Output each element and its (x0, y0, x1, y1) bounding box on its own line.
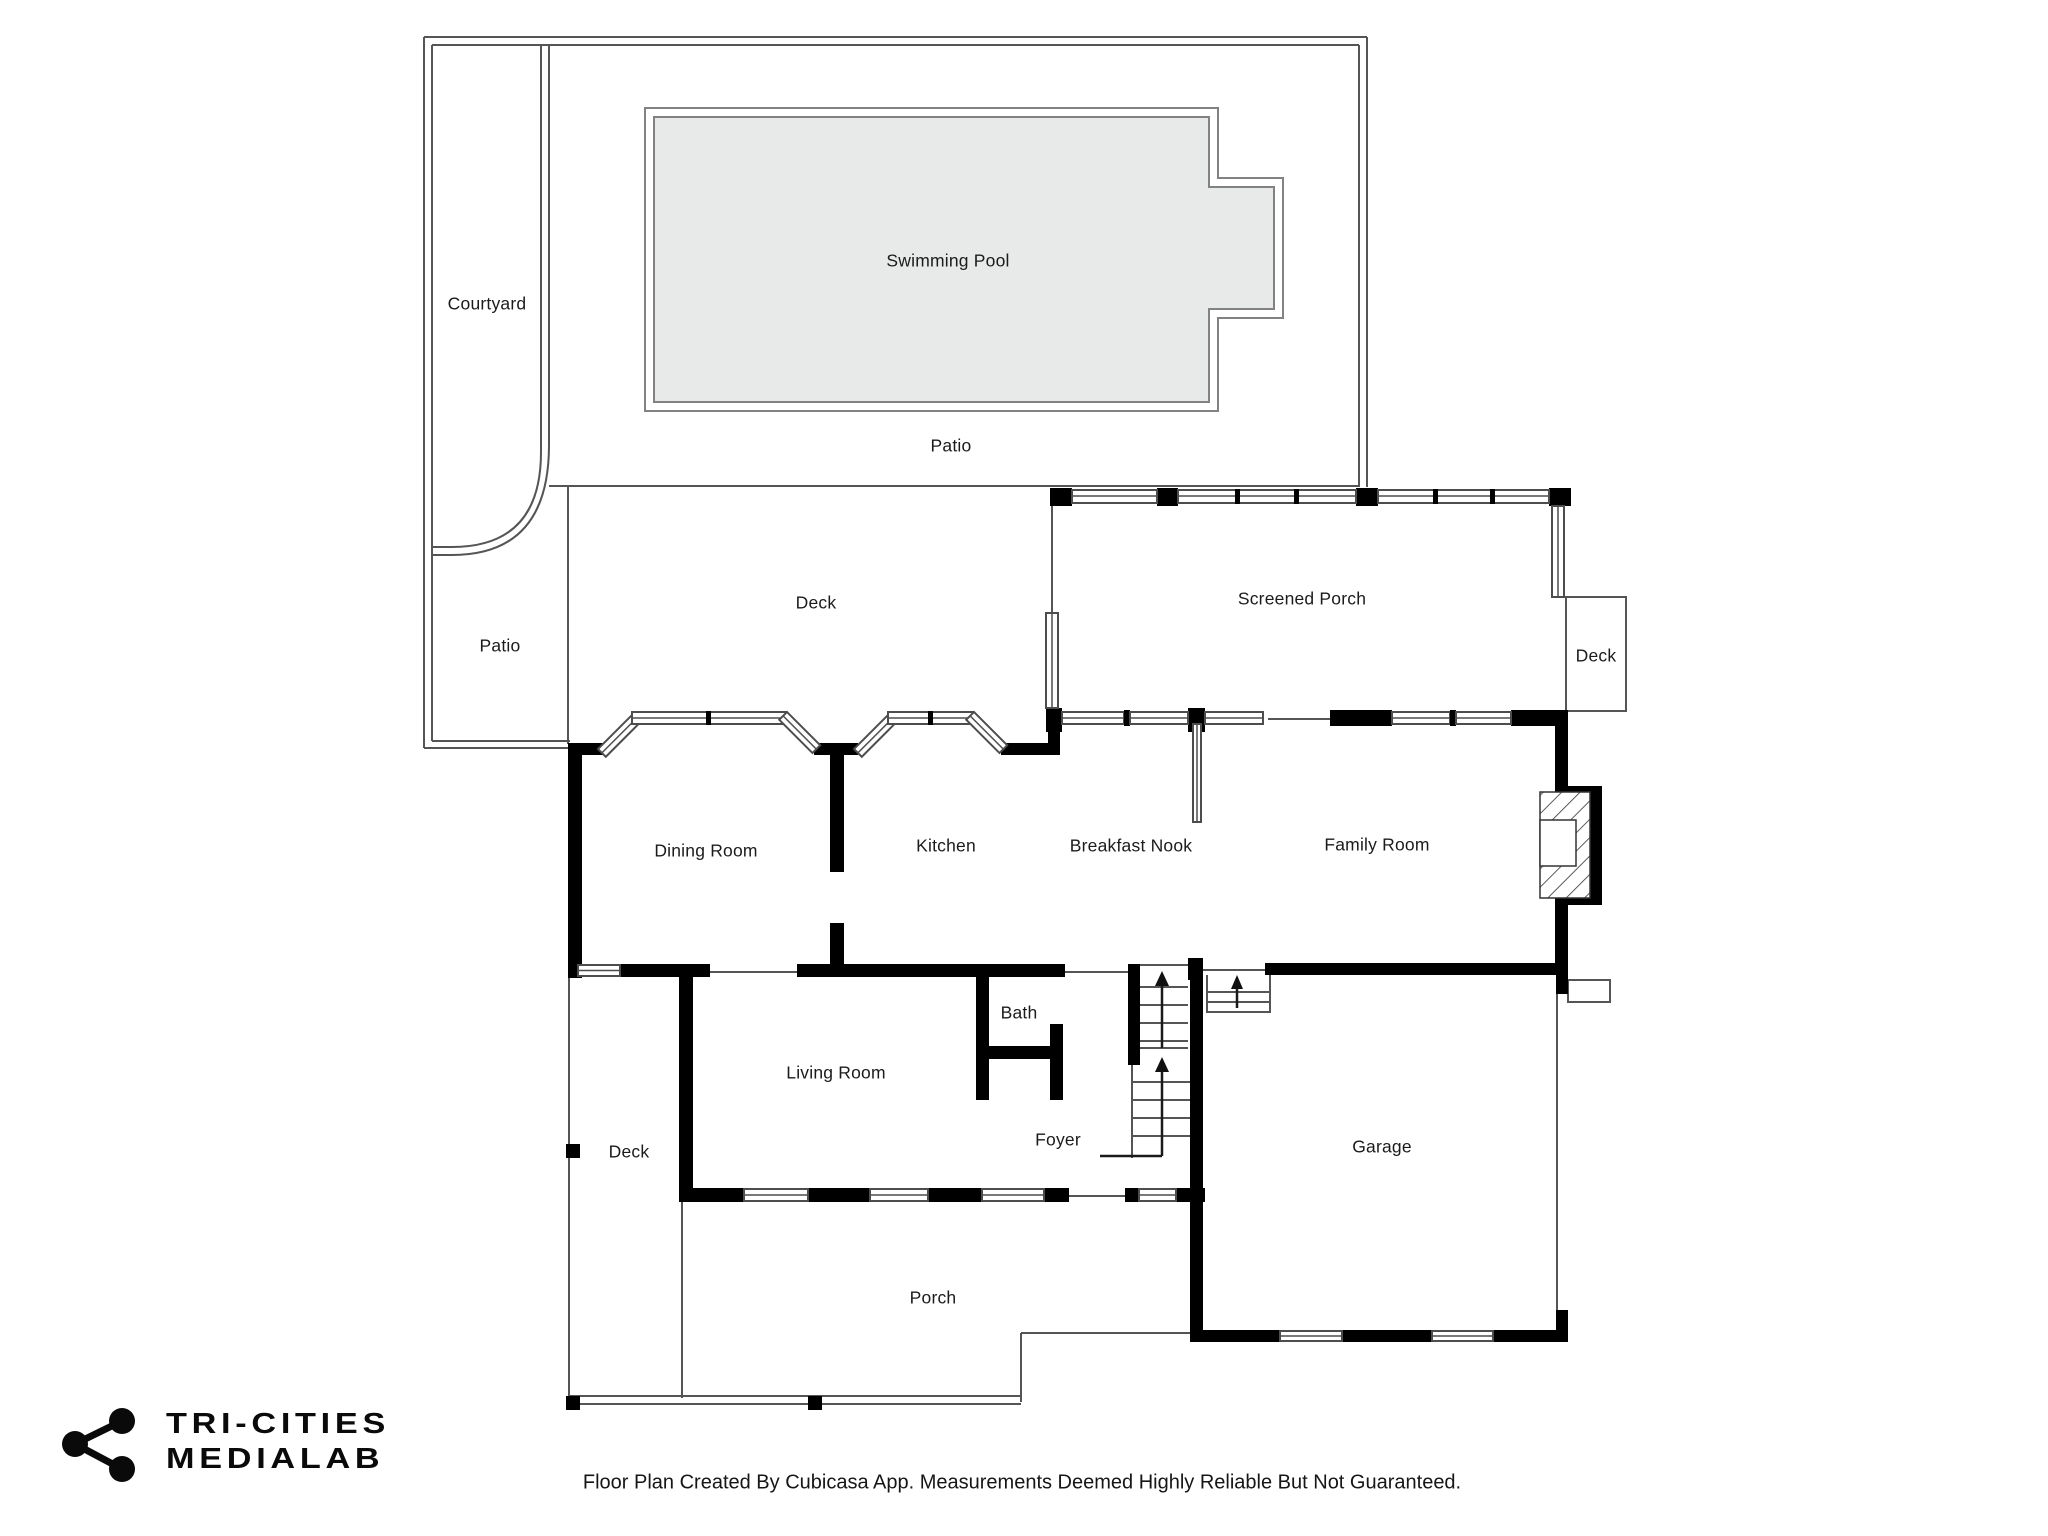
room-label-patio-left: Patio (480, 636, 521, 657)
room-label-family-room: Family Room (1324, 835, 1429, 856)
room-label-living-room: Living Room (786, 1063, 885, 1084)
bay-window-kitchen (854, 711, 1007, 757)
stairs-up-arrowhead-2 (1155, 1057, 1169, 1072)
floorplan-page: Courtyard Swimming Pool Patio Patio Deck… (0, 0, 2048, 1536)
company-logo: TRI-CITIES MEDIALAB (58, 1402, 356, 1482)
room-label-courtyard: Courtyard (448, 294, 527, 315)
logo-line1: TRI-CITIES (166, 1407, 390, 1442)
room-label-dining-room: Dining Room (654, 841, 757, 862)
walls (566, 488, 1602, 1410)
room-label-bath: Bath (1001, 1003, 1038, 1024)
garage-stoop-outline (1568, 980, 1610, 1002)
room-label-porch: Porch (910, 1288, 957, 1309)
room-label-deck-right: Deck (1576, 646, 1617, 667)
stairs-up-arrowhead-1 (1155, 971, 1169, 986)
room-label-kitchen: Kitchen (916, 836, 976, 857)
room-label-swimming-pool: Swimming Pool (886, 251, 1009, 272)
fireplace (1540, 792, 1590, 898)
room-label-patio-top: Patio (931, 436, 972, 457)
courtyard-curved-wall (432, 445, 549, 555)
room-label-deck-left: Deck (609, 1142, 650, 1163)
disclaimer-text: Floor Plan Created By Cubicasa App. Meas… (583, 1472, 1461, 1495)
stairs-up-arrow-shaft (1100, 984, 1237, 1156)
garage-steps-arrowhead (1231, 975, 1243, 989)
logo-line2: MEDIALAB (166, 1442, 390, 1477)
bay-window-dining (598, 711, 820, 757)
stairs (1100, 971, 1270, 1158)
logo-icon-spacer (58, 1402, 148, 1482)
logo-text: TRI-CITIES MEDIALAB (166, 1407, 390, 1477)
room-label-screened-porch: Screened Porch (1238, 589, 1366, 610)
windows (578, 489, 1564, 1341)
floorplan-drawing (0, 0, 2048, 1536)
room-label-deck-top: Deck (796, 593, 837, 614)
room-label-breakfast-nook: Breakfast Nook (1070, 836, 1192, 857)
room-label-foyer: Foyer (1035, 1130, 1081, 1151)
firebox (1540, 820, 1576, 866)
room-label-garage: Garage (1352, 1137, 1412, 1158)
